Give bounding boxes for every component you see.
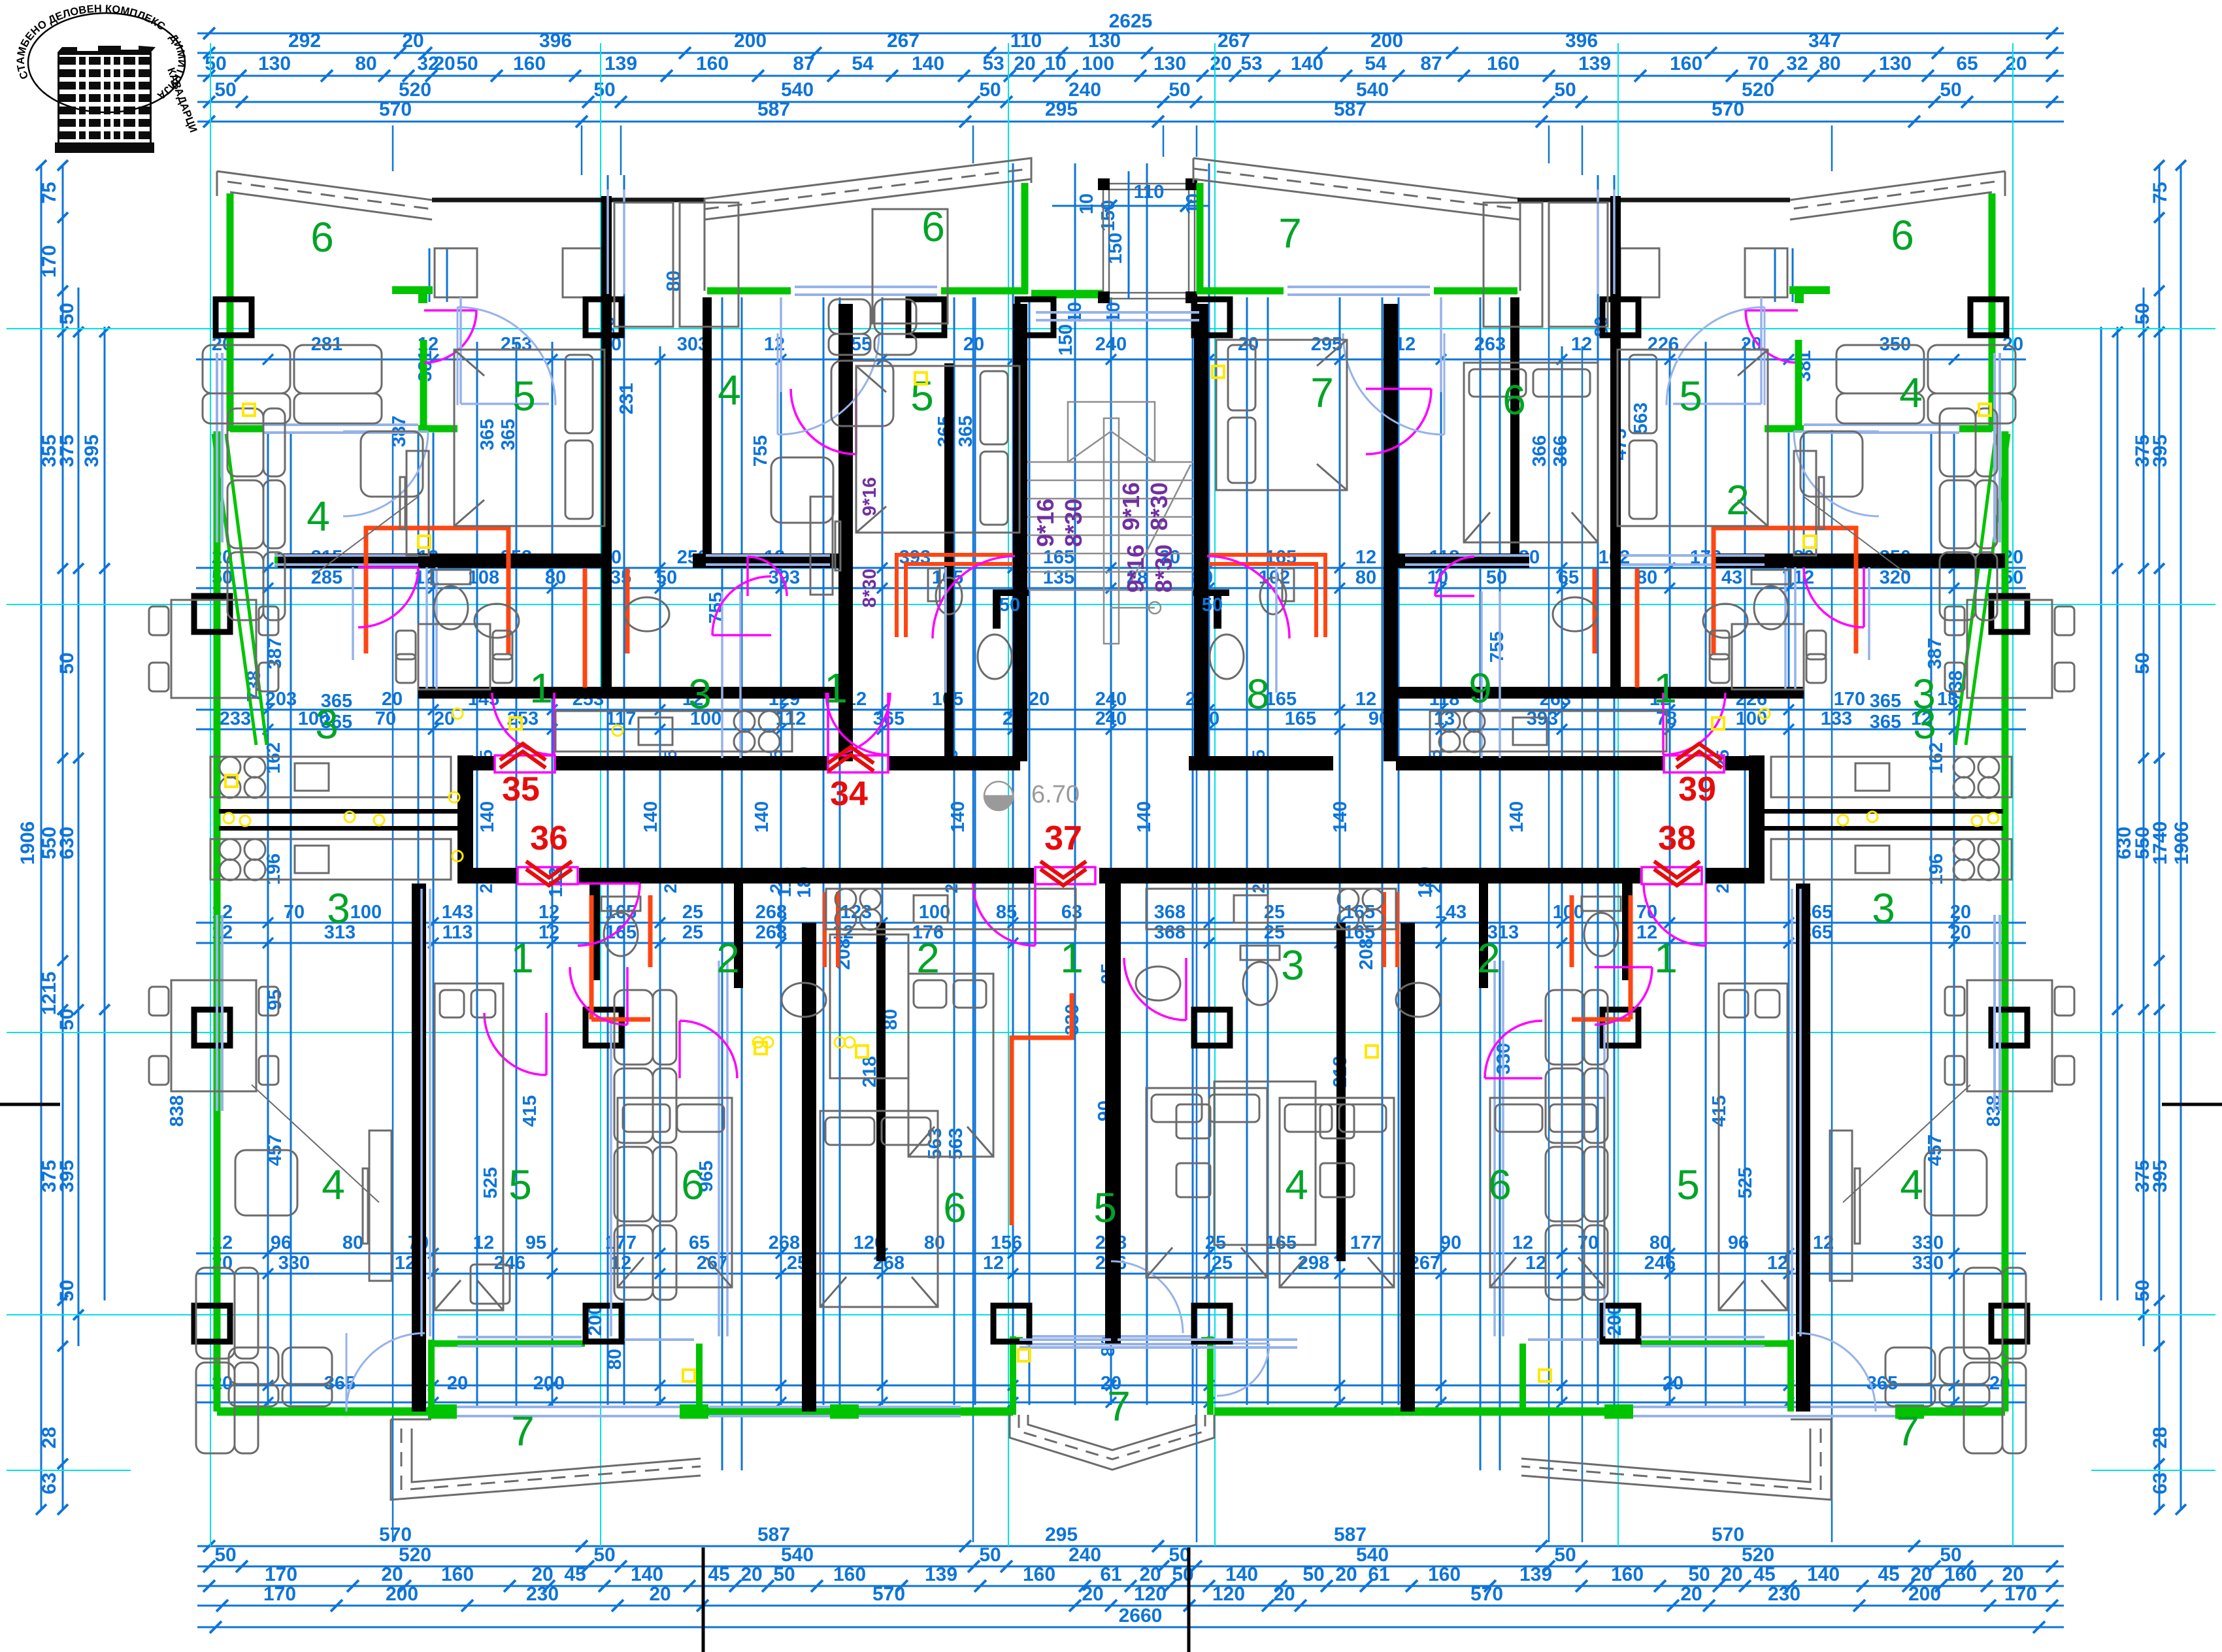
svg-text:108: 108 (468, 567, 499, 588)
svg-text:20: 20 (740, 1564, 762, 1585)
svg-text:525: 525 (480, 1167, 501, 1198)
svg-text:110: 110 (1010, 30, 1042, 52)
svg-text:28: 28 (2149, 1427, 2171, 1448)
svg-text:295: 295 (1045, 99, 1078, 120)
svg-text:95: 95 (265, 989, 286, 1010)
svg-text:100: 100 (1082, 53, 1114, 74)
svg-text:63: 63 (39, 1472, 60, 1494)
svg-text:50: 50 (1554, 1544, 1576, 1566)
svg-text:160: 160 (1944, 1564, 1977, 1585)
svg-text:140: 140 (948, 801, 969, 833)
svg-text:54: 54 (852, 53, 874, 74)
svg-text:139: 139 (1578, 53, 1611, 74)
svg-text:9*16: 9*16 (1032, 499, 1059, 547)
svg-text:65: 65 (1558, 567, 1579, 588)
svg-text:268: 268 (755, 902, 787, 923)
svg-text:6: 6 (921, 203, 945, 250)
svg-text:295: 295 (1045, 1524, 1078, 1545)
svg-text:7: 7 (1896, 1408, 1919, 1455)
svg-text:375: 375 (56, 435, 78, 467)
svg-text:20: 20 (382, 689, 403, 710)
svg-text:50: 50 (2132, 1280, 2153, 1301)
svg-text:8*30: 8*30 (859, 569, 880, 608)
svg-text:12: 12 (1355, 547, 1376, 568)
svg-text:140: 140 (640, 801, 661, 833)
svg-text:4: 4 (322, 1161, 345, 1208)
svg-text:240: 240 (1069, 1544, 1101, 1566)
svg-text:347: 347 (1808, 30, 1841, 52)
svg-text:170: 170 (265, 1564, 297, 1585)
svg-text:240: 240 (1095, 689, 1127, 710)
svg-text:130: 130 (1088, 30, 1121, 52)
svg-text:3: 3 (1872, 885, 1895, 932)
svg-text:9*16: 9*16 (1118, 482, 1144, 531)
svg-text:50: 50 (1940, 1544, 1961, 1566)
svg-text:200: 200 (1908, 1583, 1941, 1605)
svg-text:34: 34 (830, 775, 868, 813)
svg-text:4: 4 (1899, 369, 1923, 416)
svg-text:100: 100 (1553, 902, 1584, 923)
svg-text:587: 587 (757, 1524, 790, 1545)
svg-text:50: 50 (1169, 79, 1190, 101)
svg-text:2: 2 (1477, 934, 1501, 982)
svg-text:45: 45 (564, 1564, 586, 1585)
svg-text:240: 240 (1095, 708, 1127, 729)
svg-text:20: 20 (447, 1373, 468, 1394)
svg-text:200: 200 (734, 30, 767, 52)
svg-text:135: 135 (1043, 567, 1074, 588)
svg-text:8*30: 8*30 (1146, 482, 1172, 531)
svg-text:570: 570 (1712, 99, 1744, 120)
svg-text:140: 140 (1506, 801, 1527, 833)
svg-text:25: 25 (682, 902, 703, 923)
svg-text:395: 395 (56, 1160, 78, 1193)
svg-text:50: 50 (456, 53, 478, 74)
svg-text:160: 160 (696, 53, 729, 74)
svg-text:200: 200 (386, 1583, 418, 1605)
svg-text:230: 230 (526, 1583, 559, 1605)
svg-text:70: 70 (1747, 53, 1768, 74)
svg-text:395: 395 (81, 435, 103, 467)
svg-text:7: 7 (1310, 369, 1334, 416)
svg-text:570: 570 (379, 1524, 412, 1545)
svg-text:12: 12 (539, 902, 559, 923)
svg-text:20: 20 (963, 334, 984, 355)
svg-text:50: 50 (979, 1544, 1001, 1566)
svg-text:20: 20 (2005, 53, 2027, 74)
svg-text:80: 80 (355, 53, 376, 74)
svg-text:587: 587 (1334, 99, 1367, 120)
svg-text:100: 100 (919, 902, 950, 923)
svg-text:330: 330 (1912, 1232, 1944, 1253)
svg-text:165: 165 (1043, 547, 1074, 568)
svg-text:87: 87 (793, 53, 814, 74)
svg-text:20: 20 (1950, 902, 1971, 923)
svg-text:165: 165 (1265, 689, 1297, 710)
svg-text:10: 10 (1044, 53, 1066, 74)
svg-text:1: 1 (824, 665, 848, 712)
svg-text:143: 143 (1435, 902, 1467, 923)
svg-text:387: 387 (265, 638, 286, 669)
svg-text:563: 563 (1631, 403, 1651, 434)
svg-text:140: 140 (912, 53, 944, 74)
svg-text:43: 43 (1721, 567, 1742, 588)
svg-text:80: 80 (605, 1349, 625, 1370)
svg-text:570: 570 (1470, 1583, 1503, 1605)
svg-text:25: 25 (1212, 1253, 1233, 1274)
svg-text:3: 3 (1913, 701, 1936, 748)
svg-text:540: 540 (1356, 1544, 1389, 1566)
svg-text:25: 25 (682, 922, 703, 943)
svg-text:65: 65 (1956, 53, 1978, 74)
svg-text:20: 20 (1335, 1564, 1357, 1585)
svg-text:20: 20 (1273, 1583, 1295, 1605)
svg-text:520: 520 (399, 1544, 431, 1566)
svg-text:298: 298 (1298, 1253, 1329, 1274)
svg-text:50: 50 (1302, 1564, 1324, 1585)
svg-text:1906: 1906 (17, 821, 39, 865)
svg-text:12: 12 (1525, 1253, 1546, 1274)
svg-text:50: 50 (1486, 567, 1507, 588)
svg-text:28: 28 (39, 1427, 60, 1448)
svg-text:2: 2 (916, 934, 940, 982)
svg-text:3: 3 (315, 701, 339, 748)
svg-text:396: 396 (539, 30, 572, 52)
svg-text:240: 240 (1095, 334, 1127, 355)
svg-text:365: 365 (498, 419, 519, 450)
svg-text:231: 231 (616, 383, 637, 414)
svg-text:53: 53 (982, 53, 1004, 74)
svg-text:10: 10 (1076, 193, 1097, 214)
svg-text:12: 12 (983, 1253, 1004, 1274)
svg-text:8*30: 8*30 (1150, 544, 1177, 593)
svg-text:70: 70 (1578, 1232, 1599, 1253)
svg-text:45: 45 (1753, 1564, 1775, 1585)
svg-text:45: 45 (1878, 1564, 1899, 1585)
svg-text:61: 61 (1100, 1564, 1121, 1585)
svg-text:267: 267 (1218, 30, 1250, 52)
svg-text:80: 80 (1355, 567, 1376, 588)
svg-text:6.70: 6.70 (1031, 781, 1080, 808)
svg-text:4: 4 (307, 493, 330, 540)
svg-text:63: 63 (2149, 1472, 2171, 1494)
svg-text:2660: 2660 (1119, 1605, 1163, 1627)
svg-text:96: 96 (271, 1232, 291, 1253)
svg-text:540: 540 (781, 1544, 814, 1566)
svg-text:285: 285 (311, 567, 342, 588)
svg-text:120: 120 (1212, 1583, 1245, 1605)
svg-text:2: 2 (716, 934, 740, 982)
svg-text:160: 160 (833, 1564, 866, 1585)
svg-text:50: 50 (56, 652, 78, 674)
svg-text:20: 20 (381, 1564, 403, 1585)
svg-text:160: 160 (513, 53, 546, 74)
svg-text:139: 139 (925, 1564, 957, 1585)
svg-text:63: 63 (1061, 902, 1082, 923)
svg-text:233: 233 (220, 708, 251, 729)
svg-text:3: 3 (688, 670, 712, 718)
svg-text:365: 365 (1870, 691, 1901, 712)
svg-text:838: 838 (167, 1095, 188, 1127)
svg-text:160: 160 (1487, 53, 1519, 74)
svg-text:95: 95 (525, 1232, 546, 1253)
svg-text:165: 165 (605, 922, 637, 943)
svg-text:170: 170 (1834, 689, 1865, 710)
svg-text:140: 140 (1134, 801, 1155, 833)
svg-text:6: 6 (681, 1161, 705, 1208)
svg-text:7: 7 (511, 1408, 535, 1455)
svg-text:540: 540 (1356, 79, 1389, 101)
svg-text:50: 50 (1202, 595, 1223, 616)
svg-text:8*30: 8*30 (1060, 499, 1087, 547)
svg-text:54: 54 (1365, 53, 1387, 74)
svg-text:366: 366 (1529, 435, 1550, 467)
svg-text:6: 6 (1891, 212, 1914, 259)
svg-text:5: 5 (1679, 372, 1702, 420)
svg-text:12: 12 (1767, 1253, 1788, 1274)
svg-text:570: 570 (1712, 1524, 1744, 1545)
svg-text:2625: 2625 (1109, 10, 1153, 32)
svg-text:375: 375 (2132, 435, 2153, 467)
svg-text:368: 368 (1154, 922, 1186, 943)
svg-text:20: 20 (2002, 1564, 2023, 1585)
svg-text:139: 139 (605, 53, 637, 74)
svg-text:50: 50 (2132, 652, 2153, 674)
svg-text:1: 1 (1654, 934, 1678, 982)
svg-text:208: 208 (1356, 938, 1377, 970)
svg-text:7: 7 (1278, 210, 1302, 257)
svg-text:50: 50 (56, 303, 78, 324)
svg-text:160: 160 (441, 1564, 474, 1585)
svg-text:200: 200 (1370, 30, 1403, 52)
svg-text:20: 20 (1210, 53, 1231, 74)
svg-text:267: 267 (697, 1253, 728, 1274)
svg-text:80: 80 (545, 567, 566, 588)
svg-text:80: 80 (1636, 567, 1657, 588)
svg-text:140: 140 (1807, 1564, 1840, 1585)
svg-text:755: 755 (706, 592, 727, 623)
svg-text:80: 80 (1819, 53, 1840, 74)
svg-text:6: 6 (1488, 1161, 1512, 1208)
svg-text:50: 50 (56, 1008, 78, 1030)
svg-text:75: 75 (39, 182, 60, 203)
svg-text:365: 365 (477, 419, 498, 450)
svg-text:50: 50 (214, 1544, 236, 1566)
svg-text:70: 70 (375, 708, 396, 729)
svg-text:50: 50 (773, 1564, 795, 1585)
svg-text:65: 65 (689, 1232, 710, 1253)
svg-text:53: 53 (1240, 53, 1262, 74)
svg-text:50: 50 (1554, 79, 1576, 101)
svg-text:415: 415 (520, 1095, 540, 1127)
svg-text:113: 113 (442, 922, 473, 943)
svg-text:12: 12 (1571, 334, 1592, 355)
svg-text:170: 170 (263, 1583, 296, 1605)
svg-text:20: 20 (402, 30, 423, 52)
svg-text:246: 246 (1644, 1253, 1676, 1274)
svg-text:50: 50 (1940, 79, 1961, 101)
svg-text:540: 540 (781, 79, 814, 101)
svg-text:292: 292 (288, 30, 321, 52)
svg-text:320: 320 (1880, 567, 1911, 588)
svg-text:160: 160 (1023, 1564, 1055, 1585)
svg-text:139: 139 (1519, 1564, 1552, 1585)
svg-text:12: 12 (473, 1232, 494, 1253)
svg-text:6: 6 (310, 214, 334, 261)
svg-text:20: 20 (649, 1583, 671, 1605)
svg-text:20: 20 (1014, 53, 1035, 74)
svg-text:20: 20 (1950, 922, 1971, 943)
svg-text:12: 12 (539, 922, 559, 943)
svg-text:587: 587 (757, 99, 790, 120)
svg-text:755: 755 (750, 435, 771, 467)
svg-text:9*16: 9*16 (859, 477, 880, 516)
svg-text:4: 4 (718, 367, 741, 414)
svg-text:387: 387 (1925, 638, 1946, 669)
svg-text:395: 395 (2149, 1160, 2171, 1193)
svg-text:267: 267 (887, 30, 920, 52)
svg-text:162: 162 (263, 742, 284, 774)
svg-text:50: 50 (214, 79, 236, 101)
svg-text:3: 3 (327, 885, 350, 932)
svg-text:5: 5 (508, 1161, 532, 1208)
svg-text:7: 7 (1107, 1383, 1131, 1430)
svg-text:1: 1 (529, 665, 553, 712)
svg-text:570: 570 (872, 1583, 905, 1605)
svg-text:156: 156 (991, 1232, 1022, 1253)
svg-text:165: 165 (1285, 708, 1316, 729)
svg-text:50: 50 (593, 1544, 615, 1566)
svg-text:143: 143 (442, 902, 473, 923)
svg-text:35: 35 (502, 770, 540, 808)
svg-text:160: 160 (1611, 1564, 1644, 1585)
svg-text:50: 50 (2132, 303, 2153, 324)
svg-text:5: 5 (512, 372, 536, 420)
svg-text:755: 755 (1487, 631, 1508, 663)
svg-text:6: 6 (1502, 376, 1526, 423)
svg-text:130: 130 (258, 53, 291, 74)
svg-text:170: 170 (2004, 1583, 2037, 1605)
svg-text:263: 263 (1474, 334, 1506, 355)
svg-text:4: 4 (1900, 1161, 1923, 1208)
svg-text:1: 1 (510, 934, 534, 982)
svg-text:85: 85 (996, 902, 1017, 923)
svg-text:50: 50 (656, 567, 677, 588)
svg-text:226: 226 (1648, 334, 1679, 355)
svg-text:570: 570 (379, 99, 412, 120)
svg-text:20: 20 (531, 1564, 553, 1585)
svg-text:32: 32 (1786, 53, 1808, 74)
svg-text:140: 140 (752, 801, 772, 833)
svg-text:45: 45 (708, 1564, 729, 1585)
svg-text:9*16: 9*16 (1122, 544, 1149, 593)
svg-text:50: 50 (205, 53, 226, 74)
svg-text:200: 200 (1604, 1304, 1625, 1336)
svg-text:396: 396 (1565, 30, 1598, 52)
svg-text:6: 6 (943, 1184, 967, 1231)
svg-text:25: 25 (1205, 1232, 1226, 1253)
svg-text:140: 140 (477, 801, 498, 833)
svg-text:2: 2 (1726, 476, 1749, 523)
svg-text:240: 240 (1069, 79, 1101, 101)
svg-text:230: 230 (1768, 1583, 1800, 1605)
svg-text:8: 8 (1246, 670, 1270, 718)
svg-text:366: 366 (1550, 435, 1571, 467)
svg-text:200: 200 (533, 1373, 565, 1394)
svg-text:37: 37 (1044, 819, 1082, 857)
svg-text:365: 365 (1870, 712, 1901, 733)
svg-text:130: 130 (1879, 53, 1912, 74)
svg-text:12: 12 (1355, 689, 1376, 710)
svg-text:177: 177 (1350, 1232, 1382, 1253)
svg-text:20: 20 (1029, 689, 1050, 710)
svg-text:80: 80 (1650, 1232, 1670, 1253)
svg-text:525: 525 (1735, 1167, 1756, 1198)
svg-text:50: 50 (979, 79, 1001, 101)
svg-text:140: 140 (1225, 1564, 1258, 1585)
svg-text:90: 90 (1440, 1232, 1461, 1253)
svg-text:170: 170 (39, 245, 60, 278)
svg-text:520: 520 (1742, 1544, 1774, 1566)
svg-text:20: 20 (1680, 1583, 1702, 1605)
svg-text:330: 330 (1912, 1253, 1944, 1274)
svg-text:20: 20 (1082, 1583, 1103, 1605)
svg-text:50: 50 (1688, 1564, 1710, 1585)
svg-text:268: 268 (769, 1232, 800, 1253)
svg-text:365: 365 (955, 416, 976, 447)
svg-text:96: 96 (1728, 1232, 1749, 1253)
svg-text:25: 25 (1264, 922, 1285, 943)
svg-text:295: 295 (1311, 334, 1342, 355)
svg-text:268: 268 (755, 922, 787, 943)
svg-text:177: 177 (605, 1232, 637, 1253)
svg-text:80: 80 (342, 1232, 363, 1253)
svg-text:5: 5 (1676, 1161, 1700, 1208)
svg-text:330: 330 (278, 1253, 310, 1274)
svg-text:520: 520 (1742, 79, 1774, 101)
svg-text:133: 133 (1821, 708, 1852, 729)
svg-text:3: 3 (1281, 942, 1304, 989)
svg-text:140: 140 (631, 1564, 663, 1585)
svg-text:165: 165 (1265, 1232, 1297, 1253)
svg-text:563: 563 (946, 1128, 967, 1159)
svg-text:630: 630 (56, 827, 78, 859)
svg-text:50: 50 (999, 595, 1020, 616)
svg-text:20: 20 (1663, 1373, 1683, 1394)
svg-text:38: 38 (1658, 819, 1696, 857)
svg-text:120: 120 (1134, 1583, 1167, 1605)
svg-text:140: 140 (1291, 53, 1323, 74)
svg-text:140: 140 (1330, 801, 1351, 833)
svg-text:80: 80 (924, 1232, 945, 1253)
svg-text:50: 50 (56, 1280, 78, 1301)
svg-text:4: 4 (1285, 1161, 1308, 1208)
svg-text:20: 20 (1139, 1564, 1161, 1585)
svg-text:587: 587 (1334, 1524, 1367, 1545)
svg-text:12: 12 (1512, 1232, 1533, 1253)
svg-text:9: 9 (1468, 665, 1492, 712)
svg-text:110: 110 (1134, 182, 1165, 203)
svg-text:1906: 1906 (2171, 821, 2193, 865)
svg-text:87: 87 (1420, 53, 1442, 74)
svg-text:100: 100 (350, 902, 382, 923)
svg-text:70: 70 (284, 902, 305, 923)
svg-text:160: 160 (1670, 53, 1702, 74)
svg-text:150: 150 (1105, 233, 1126, 264)
svg-text:1: 1 (1060, 934, 1084, 982)
svg-text:150: 150 (1055, 324, 1076, 355)
svg-text:368: 368 (1154, 902, 1186, 923)
